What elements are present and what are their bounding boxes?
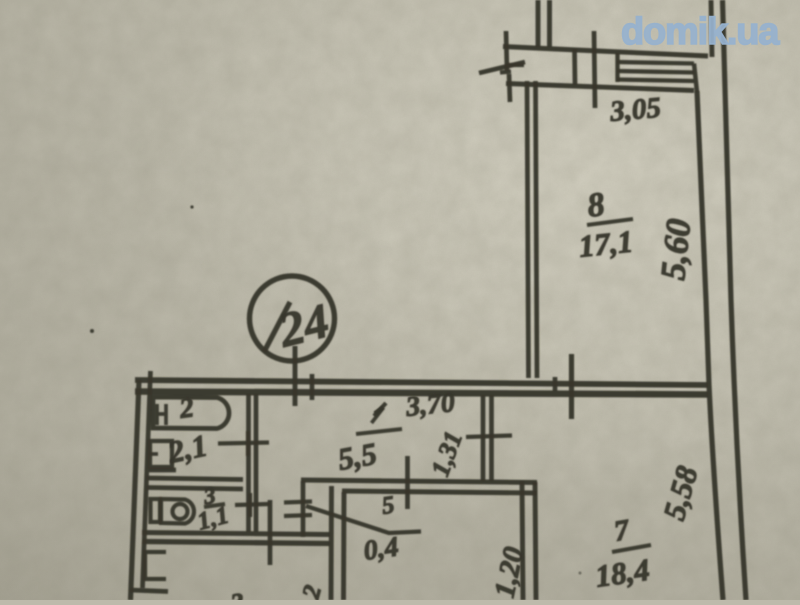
svg-text:18,4: 18,4 — [593, 552, 652, 594]
svg-text:0,4: 0,4 — [362, 531, 401, 567]
svg-text:17,1: 17,1 — [577, 223, 635, 263]
svg-text:3,70: 3,70 — [403, 387, 456, 423]
svg-text:5,60: 5,60 — [653, 217, 698, 282]
svg-text:3,05: 3,05 — [608, 92, 662, 128]
svg-text:5,5: 5,5 — [335, 436, 379, 477]
svg-text:domik.ua: domik.ua — [621, 11, 780, 53]
